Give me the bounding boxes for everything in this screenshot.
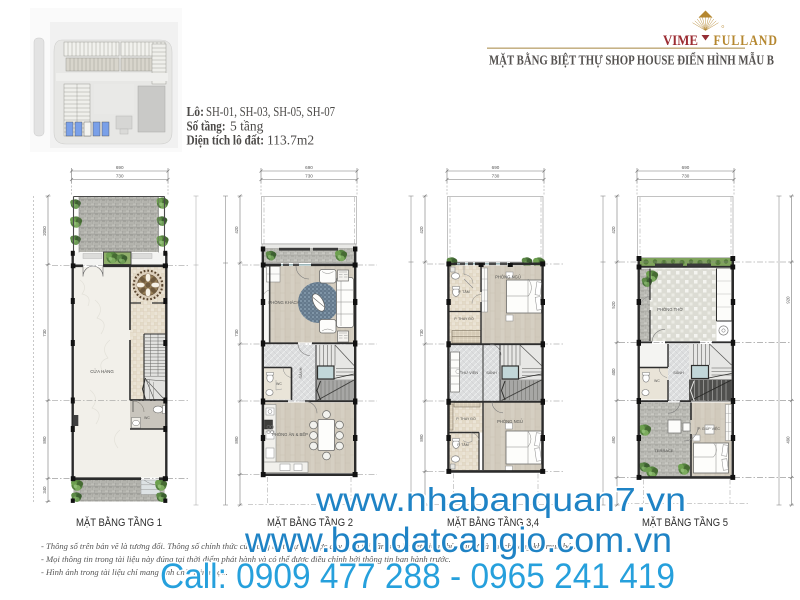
svg-text:PHÒNG ĂN & BẾP: PHÒNG ĂN & BẾP: [272, 432, 308, 437]
svg-text:920: 920: [786, 296, 791, 304]
svg-text:PHÒNG NGỦ: PHÒNG NGỦ: [495, 275, 521, 280]
svg-text:420: 420: [234, 226, 239, 234]
svg-text:SẢNH: SẢNH: [673, 370, 684, 375]
svg-text:730: 730: [305, 174, 313, 179]
svg-text:400: 400: [611, 368, 616, 376]
svg-text:SẢNH: SẢNH: [298, 367, 303, 378]
svg-text:SẢNH: SẢNH: [486, 370, 497, 375]
svg-text:730: 730: [42, 329, 47, 337]
svg-text:730: 730: [116, 174, 124, 179]
svg-text:Lô:: Lô:: [187, 104, 205, 119]
svg-text:www.nhabanquan7.vn: www.nhabanquan7.vn: [315, 481, 686, 518]
svg-text:P. TẮM: P. TẮM: [457, 442, 468, 447]
svg-text:730: 730: [682, 174, 690, 179]
svg-text:730: 730: [492, 174, 500, 179]
svg-text:690: 690: [116, 165, 124, 170]
svg-text:5 tầng: 5 tầng: [230, 119, 264, 134]
svg-text:P. GIÚP VIỆC: P. GIÚP VIỆC: [698, 426, 720, 431]
svg-text:PHÒNG NGỦ: PHÒNG NGỦ: [497, 419, 523, 424]
svg-text:890: 890: [42, 436, 47, 444]
svg-text:MẶT BẰNG BIỆT THỰ SHOP HOUSE: MẶT BẰNG BIỆT THỰ SHOP HOUSE ĐIỂN HÌNH M…: [489, 51, 774, 69]
svg-text:WC: WC: [654, 379, 660, 383]
svg-text:490: 490: [611, 436, 616, 444]
svg-text:690: 690: [492, 165, 500, 170]
svg-text:THƯ VIỆN: THƯ VIỆN: [460, 370, 478, 375]
svg-text:520: 520: [611, 301, 616, 309]
svg-text:www.bandatcangio.com.vn: www.bandatcangio.com.vn: [244, 521, 672, 560]
svg-text:113.7m2: 113.7m2: [267, 133, 314, 148]
svg-text:730: 730: [234, 329, 239, 337]
svg-text:Số tầng:: Số tầng:: [187, 119, 226, 134]
svg-text:SH-01, SH-03, SH-05, SH-07: SH-01, SH-03, SH-05, SH-07: [206, 104, 335, 119]
svg-text:FULLAND: FULLAND: [714, 33, 779, 49]
svg-text:890: 890: [234, 436, 239, 444]
svg-text:340: 340: [42, 486, 47, 494]
svg-text:PHÒNG KHÁCH: PHÒNG KHÁCH: [268, 300, 299, 305]
svg-text:420: 420: [611, 226, 616, 234]
svg-text:2050: 2050: [42, 226, 47, 236]
svg-text:CỬA HÀNG: CỬA HÀNG: [90, 369, 114, 374]
svg-text:420: 420: [419, 226, 424, 234]
svg-text:VIME: VIME: [663, 33, 698, 49]
svg-text:890: 890: [419, 434, 424, 442]
svg-text:730: 730: [419, 329, 424, 337]
svg-text:P. TẮM: P. TẮM: [458, 289, 469, 294]
svg-text:TERRACE: TERRACE: [654, 448, 673, 453]
svg-text:MẶT BẰNG TẦNG 1: MẶT BẰNG TẦNG 1: [76, 516, 162, 529]
svg-text:Diện tích lô đất:: Diện tích lô đất:: [187, 133, 265, 148]
svg-text:690: 690: [305, 165, 313, 170]
svg-text:Call: 0909 477 288 - 0965 241: Call: 0909 477 288 - 0965 241 419: [160, 557, 675, 596]
svg-text:490: 490: [786, 436, 791, 444]
svg-text:WC: WC: [144, 416, 150, 420]
svg-text:P. THAY ĐỒ: P. THAY ĐỒ: [454, 316, 474, 321]
svg-text:PHÒNG THỜ: PHÒNG THỜ: [657, 307, 683, 312]
svg-text:690: 690: [682, 165, 690, 170]
svg-text:WC: WC: [276, 382, 282, 386]
svg-text:P. THAY ĐỒ: P. THAY ĐỒ: [456, 416, 476, 421]
